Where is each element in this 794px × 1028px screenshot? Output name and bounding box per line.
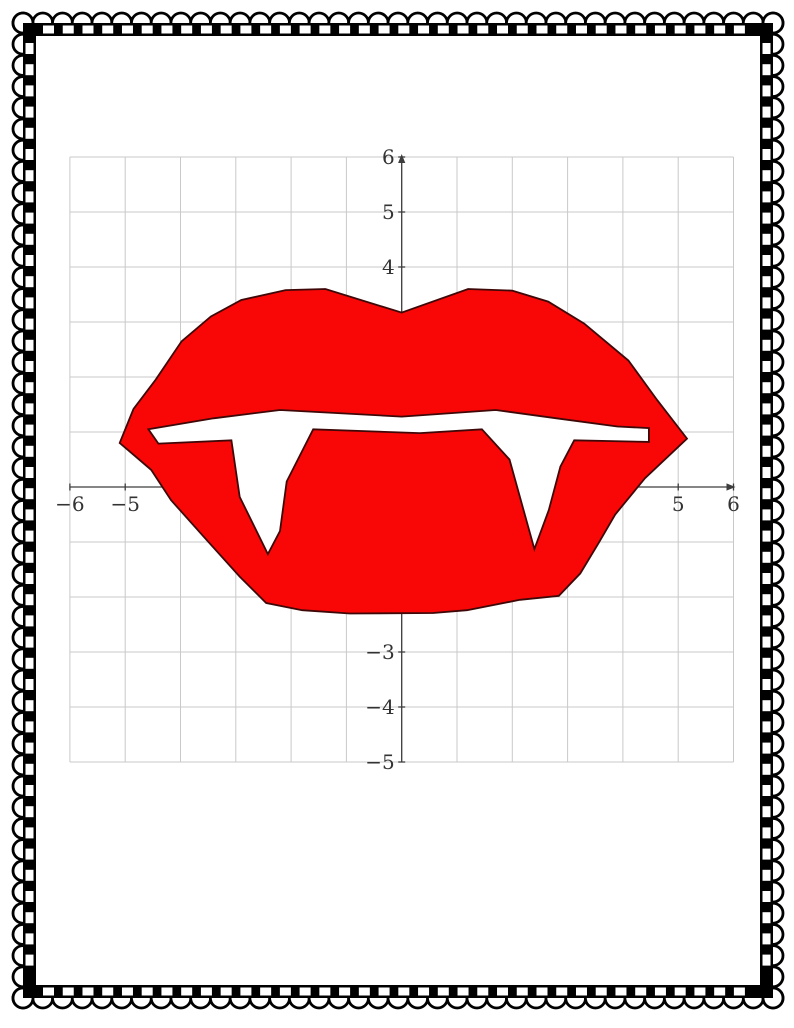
border-dash	[201, 26, 212, 34]
worksheet-scene: −6−556654−3−4−5	[0, 0, 794, 1028]
border-dash	[763, 43, 771, 54]
border-dash	[63, 988, 74, 996]
y-axis-arrow	[398, 154, 405, 163]
border-dash	[26, 933, 34, 944]
border-dash	[763, 594, 771, 605]
border-dash	[43, 988, 54, 996]
border-dash	[359, 988, 370, 996]
border-dash	[300, 988, 311, 996]
border-dash	[26, 721, 34, 732]
border-dash	[763, 382, 771, 393]
border-dash	[26, 531, 34, 542]
border-dash	[477, 988, 488, 996]
border-dash	[398, 988, 409, 996]
border-dash	[280, 26, 291, 34]
border-dash	[26, 213, 34, 224]
border-dash	[26, 361, 34, 372]
border-dash	[763, 764, 771, 775]
border-dash	[26, 509, 34, 520]
border-dash	[763, 721, 771, 732]
border-dash	[763, 870, 771, 881]
border-dash	[763, 191, 771, 202]
border-dash	[517, 26, 528, 34]
border-dash	[556, 988, 567, 996]
border-dash	[556, 26, 567, 34]
border-dash	[763, 213, 771, 224]
border-dash	[714, 26, 725, 34]
border-dash	[26, 658, 34, 669]
lips-outline-shape	[120, 289, 687, 614]
border-dash	[379, 26, 390, 34]
border-dash	[181, 988, 192, 996]
coordinate-graph: −6−556654−3−4−5	[55, 145, 740, 774]
border-dash	[26, 806, 34, 817]
border-dash	[675, 26, 686, 34]
border-dash	[763, 955, 771, 966]
border-dash	[240, 988, 251, 996]
border-dash	[319, 26, 330, 34]
y-axis-tick-label: −5	[365, 750, 394, 774]
border-dash	[26, 425, 34, 436]
border-dash	[26, 488, 34, 499]
border-dash	[161, 988, 172, 996]
border-dash	[161, 26, 172, 34]
border-dash	[102, 988, 113, 996]
y-axis-tick-label: 4	[382, 255, 395, 279]
border-dash	[763, 743, 771, 754]
border-dash	[763, 849, 771, 860]
border-dash	[517, 988, 528, 996]
worksheet-page: −6−556654−3−4−5	[0, 0, 794, 1028]
border-dash	[260, 26, 271, 34]
border-dash	[359, 26, 370, 34]
border-dash	[734, 26, 745, 34]
border-dash	[537, 988, 548, 996]
border-dash	[26, 340, 34, 351]
border-dash	[615, 988, 626, 996]
border-dash	[763, 340, 771, 351]
border-dash	[221, 988, 232, 996]
border-dash	[596, 988, 607, 996]
border-dash	[763, 128, 771, 139]
border-dash	[26, 297, 34, 308]
border-dash	[763, 446, 771, 457]
border-dash	[763, 509, 771, 520]
border-dash	[763, 276, 771, 287]
border-dash	[438, 988, 449, 996]
border-dash	[26, 234, 34, 245]
border-dash	[576, 26, 587, 34]
border-dash	[763, 425, 771, 436]
border-dash	[596, 26, 607, 34]
border-dash	[82, 988, 93, 996]
border-dash	[763, 467, 771, 478]
border-dash	[63, 26, 74, 34]
border-dash	[201, 988, 212, 996]
x-axis-tick-label: 5	[672, 492, 685, 516]
y-axis-tick-label: −4	[365, 695, 394, 719]
border-dash	[26, 382, 34, 393]
border-dash	[319, 988, 330, 996]
x-axis-tick-label: 6	[727, 492, 740, 516]
border-dash	[418, 988, 429, 996]
border-dash	[763, 234, 771, 245]
border-dash	[763, 297, 771, 308]
border-dash	[26, 446, 34, 457]
border-dash	[763, 573, 771, 584]
border-dash	[763, 85, 771, 96]
border-dash	[26, 319, 34, 330]
border-dash	[763, 488, 771, 499]
border-dash	[26, 849, 34, 860]
border-dash	[280, 988, 291, 996]
border-dash	[26, 891, 34, 902]
border-dash	[537, 26, 548, 34]
border-dash	[635, 988, 646, 996]
border-dash	[763, 531, 771, 542]
border-dash	[26, 615, 34, 626]
border-dash	[26, 191, 34, 202]
border-dash	[763, 700, 771, 711]
border-dash	[655, 26, 666, 34]
border-dash	[694, 988, 705, 996]
border-dash	[763, 552, 771, 563]
border-dash	[142, 26, 153, 34]
border-dash	[26, 637, 34, 648]
border-dash	[734, 988, 745, 996]
border-dash	[26, 827, 34, 838]
border-dash	[300, 26, 311, 34]
border-dash	[763, 933, 771, 944]
y-axis-tick-label: 6	[382, 145, 395, 169]
border-dash	[635, 26, 646, 34]
border-dash	[240, 26, 251, 34]
border-dash	[763, 107, 771, 118]
border-dash	[82, 26, 93, 34]
border-dash	[497, 988, 508, 996]
y-axis-tick-label: 5	[382, 200, 395, 224]
border-dash	[26, 85, 34, 96]
border-dash	[26, 467, 34, 478]
border-dash	[655, 988, 666, 996]
border-dash	[763, 361, 771, 372]
border-dash	[763, 912, 771, 923]
border-dash	[458, 988, 469, 996]
border-dash	[763, 403, 771, 414]
border-dash	[763, 785, 771, 796]
border-dash	[26, 107, 34, 118]
border-dash	[379, 988, 390, 996]
border-dash	[763, 170, 771, 181]
border-dash	[221, 26, 232, 34]
border-dash	[675, 988, 686, 996]
border-dash	[694, 26, 705, 34]
border-dash	[122, 988, 133, 996]
border-dash	[26, 870, 34, 881]
border-dash	[260, 988, 271, 996]
border-dash	[763, 637, 771, 648]
border-dash	[339, 26, 350, 34]
border-dash	[438, 26, 449, 34]
border-dash	[763, 64, 771, 75]
border-dash	[763, 658, 771, 669]
border-dash	[142, 988, 153, 996]
x-axis-tick-label: −6	[55, 492, 84, 516]
border-dash	[763, 319, 771, 330]
border-dash	[763, 891, 771, 902]
border-dash	[763, 827, 771, 838]
border-dash	[26, 403, 34, 414]
border-dash	[26, 912, 34, 923]
x-axis-tick-label: −5	[110, 492, 139, 516]
border-dash	[458, 26, 469, 34]
border-dash	[26, 276, 34, 287]
border-dash	[477, 26, 488, 34]
border-dash	[122, 26, 133, 34]
border-dash	[497, 26, 508, 34]
border-dash	[763, 255, 771, 266]
border-dash	[26, 149, 34, 160]
border-dash	[181, 26, 192, 34]
border-dash	[26, 552, 34, 563]
border-dash	[26, 128, 34, 139]
border-dash	[763, 806, 771, 817]
border-dash	[26, 594, 34, 605]
border-dash	[26, 700, 34, 711]
border-dash	[763, 679, 771, 690]
border-dash	[26, 679, 34, 690]
border-dash	[26, 43, 34, 54]
border-dash	[714, 988, 725, 996]
border-dash	[339, 988, 350, 996]
border-dash	[43, 26, 54, 34]
border-dash	[26, 785, 34, 796]
border-dash	[26, 573, 34, 584]
border-dash	[26, 170, 34, 181]
border-dash	[763, 149, 771, 160]
border-dash	[763, 615, 771, 626]
y-axis-tick-label: −3	[365, 640, 394, 664]
border-dash	[418, 26, 429, 34]
border-dash	[102, 26, 113, 34]
border-dash	[576, 988, 587, 996]
border-dash	[26, 764, 34, 775]
border-dash	[26, 255, 34, 266]
border-dash	[26, 743, 34, 754]
border-dash	[26, 955, 34, 966]
border-dash	[615, 26, 626, 34]
x-axis-arrow	[727, 483, 736, 490]
border-dash	[26, 64, 34, 75]
border-dash	[398, 26, 409, 34]
